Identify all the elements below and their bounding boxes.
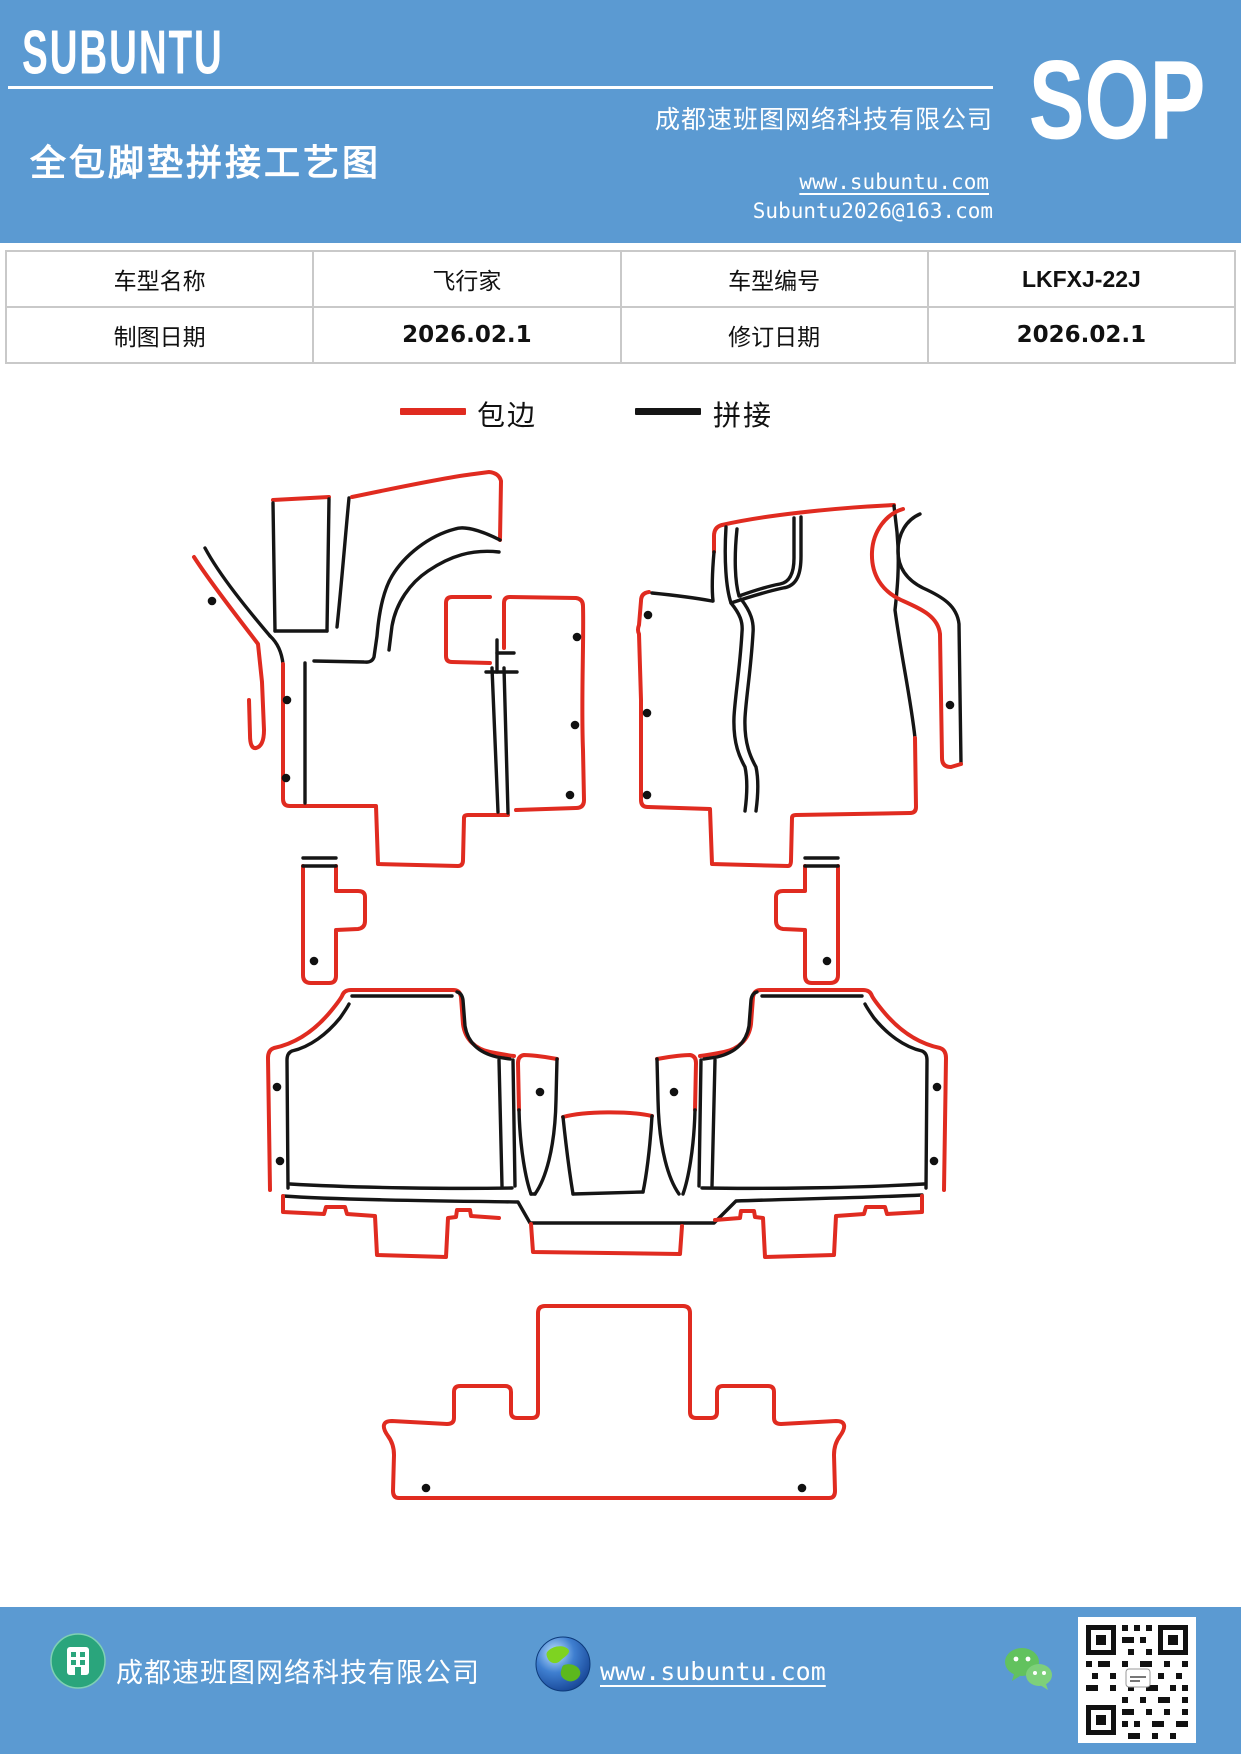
wechat-icon — [1002, 1645, 1054, 1693]
globe-icon — [534, 1635, 592, 1693]
header-email: Subuntu2026@163.com — [753, 199, 993, 223]
cell-draw-date-value: 2026.02.1 — [313, 307, 620, 363]
front-right-curl-flap — [872, 509, 961, 767]
cell-model-name-value: 飞行家 — [313, 251, 620, 307]
table-row: 制图日期 2026.02.1 修订日期 2026.02.1 — [6, 307, 1235, 363]
page-title: 全包脚垫拼接工艺图 — [30, 134, 381, 186]
third-row-mat — [384, 1306, 844, 1498]
second-row-left-mat — [268, 990, 515, 1190]
cell-model-name-label: 车型名称 — [6, 251, 313, 307]
footer-website-link[interactable]: www.subuntu.com — [600, 1657, 826, 1686]
footer-company-name: 成都速班图网络科技有限公司 — [116, 1651, 480, 1690]
page-footer: 成都速班图网络科技有限公司 www.subuntu.com — [0, 1607, 1241, 1754]
brand-logo: SUBUNTU — [22, 18, 224, 89]
header-company-name: 成都速班图网络科技有限公司 — [655, 100, 993, 136]
front-center-rect-piece — [504, 597, 584, 810]
legend: 包边 拼接 — [0, 394, 1241, 434]
cell-model-code-label: 车型编号 — [621, 251, 928, 307]
cell-revise-date-value: 2026.02.1 — [928, 307, 1235, 363]
header-divider — [8, 86, 993, 89]
mat-pattern-diagram — [0, 430, 1241, 1605]
legend-splice-swatch — [635, 408, 701, 415]
second-row-left-flap — [518, 1055, 557, 1194]
company-building-icon — [50, 1633, 106, 1689]
legend-splice-label: 拼接 — [713, 394, 773, 434]
cell-model-code-value: LKFXJ-22J — [928, 251, 1235, 307]
second-row-tunnel-piece — [563, 1112, 652, 1194]
front-center-hook-piece — [446, 597, 490, 663]
legend-edge-label: 包边 — [477, 394, 537, 434]
cell-draw-date-label: 制图日期 — [6, 307, 313, 363]
table-row: 车型名称 飞行家 车型编号 LKFXJ-22J — [6, 251, 1235, 307]
legend-edge-swatch — [400, 408, 466, 415]
second-row-right-flap — [657, 1055, 696, 1194]
vehicle-info-table: 车型名称 飞行家 车型编号 LKFXJ-22J 制图日期 2026.02.1 修… — [5, 250, 1236, 364]
cell-revise-date-label: 修订日期 — [621, 307, 928, 363]
second-row-right-mat — [699, 990, 946, 1190]
page-header: SUBUNTU 成都速班图网络科技有限公司 全包脚垫拼接工艺图 www.subu… — [0, 0, 1241, 243]
header-website-link[interactable]: www.subuntu.com — [799, 170, 989, 194]
sop-document: { "header": { "logo": "SUBUNTU", "compan… — [0, 0, 1241, 1754]
second-row-bottom-band — [283, 1195, 922, 1257]
sop-badge: SOP — [1028, 44, 1205, 156]
front-driver-mat — [194, 472, 508, 866]
qr-code — [1078, 1617, 1196, 1743]
front-passenger-mat — [638, 505, 916, 866]
